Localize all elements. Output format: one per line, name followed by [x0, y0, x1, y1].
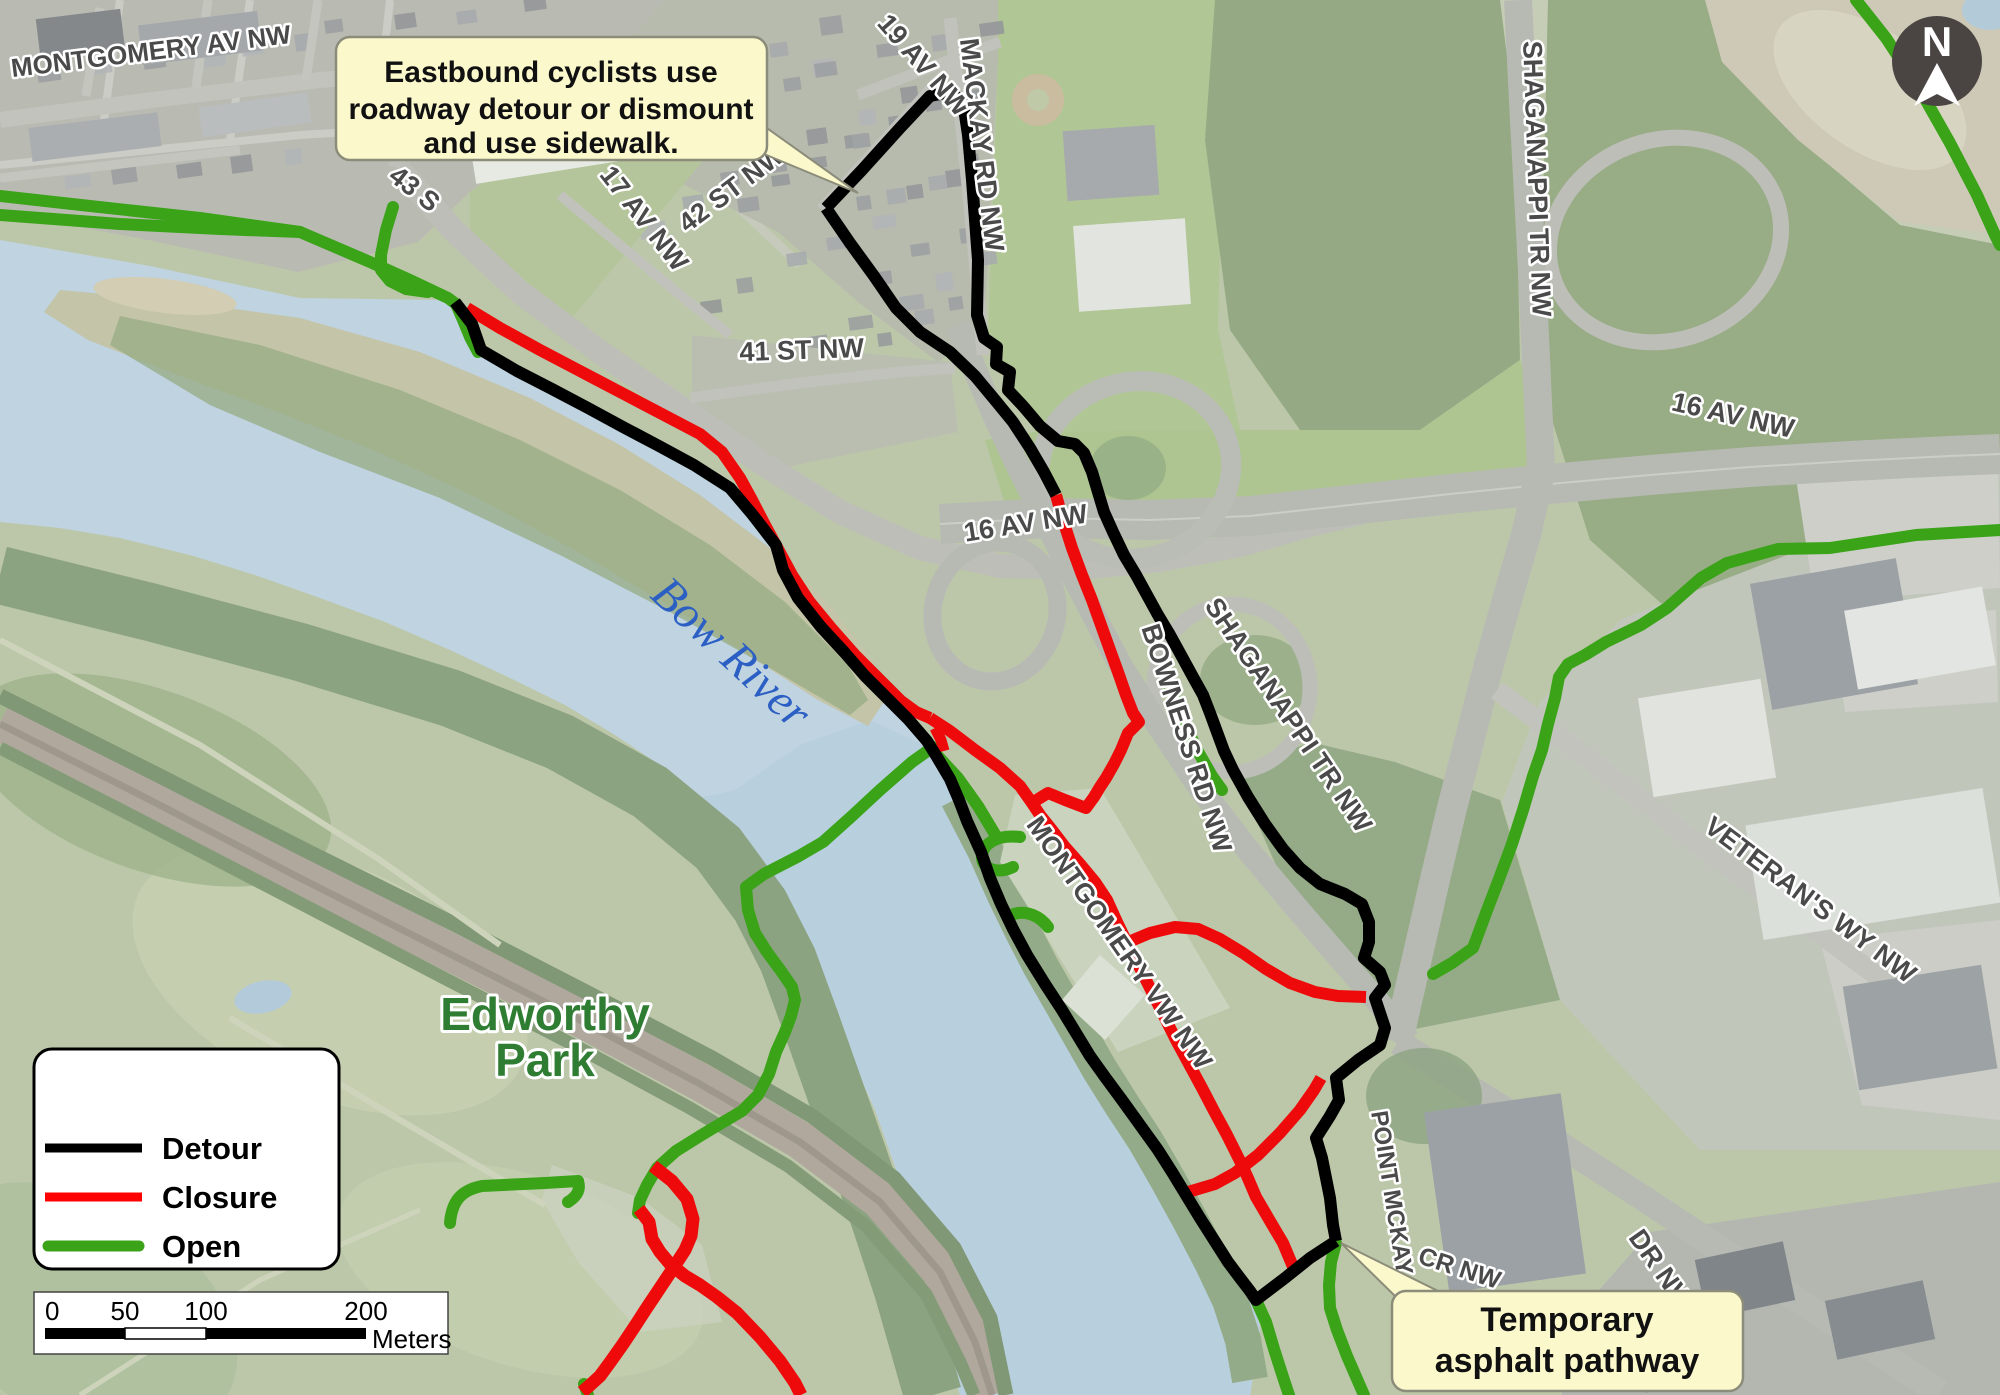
svg-text:50: 50 — [111, 1296, 140, 1326]
svg-text:roadway detour or dismount: roadway detour or dismount — [348, 93, 753, 126]
svg-text:41 ST NW: 41 ST NW — [739, 333, 865, 367]
svg-text:0: 0 — [45, 1296, 59, 1326]
svg-text:Edworthy: Edworthy — [440, 988, 650, 1040]
svg-text:Closure: Closure — [162, 1180, 277, 1215]
svg-text:Eastbound cyclists use: Eastbound cyclists use — [384, 56, 717, 89]
svg-text:100: 100 — [184, 1296, 227, 1326]
svg-text:Open: Open — [162, 1229, 241, 1264]
svg-text:Temporary: Temporary — [1480, 1301, 1653, 1339]
svg-text:asphalt pathway: asphalt pathway — [1435, 1342, 1700, 1380]
svg-text:and use sidewalk.: and use sidewalk. — [423, 127, 678, 160]
svg-text:Park: Park — [495, 1034, 595, 1086]
svg-text:200: 200 — [344, 1296, 387, 1326]
svg-text:N: N — [1922, 18, 1952, 65]
svg-text:Meters: Meters — [372, 1324, 451, 1354]
svg-text:Detour: Detour — [162, 1131, 262, 1166]
